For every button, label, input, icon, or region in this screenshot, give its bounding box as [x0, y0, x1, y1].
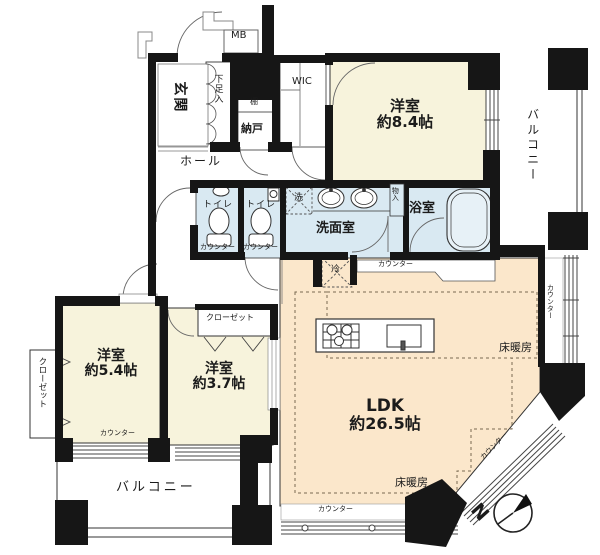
label-toilet-1: トイレ: [203, 201, 233, 210]
kitchen-island: [316, 319, 434, 352]
floorplan: MB 玄関 下足入 棚 納戸 WIC ホール 洋室 約8.4帖 バルコニー トイ…: [0, 0, 600, 555]
kitchen-sink-icon: [387, 325, 421, 350]
label-bedroom54: 洋室 約5.4帖: [65, 349, 157, 378]
label-counter-bedroom54: カウンター: [100, 430, 135, 437]
label-floor-heating-east: 床暖房: [499, 342, 532, 354]
label-counter-south: カウンター: [318, 506, 353, 513]
label-storage: 納戸: [241, 123, 263, 135]
sliding-door: [268, 338, 280, 410]
label-fridge: 冷: [331, 266, 340, 275]
label-washroom: 洗面室: [316, 222, 355, 236]
label-shoe-cabinet: 下足入: [212, 74, 221, 104]
label-closet-37: クローゼット: [206, 314, 254, 322]
label-wic: WIC: [292, 77, 312, 88]
label-balcony-south: バルコニー: [116, 481, 196, 495]
label-toilet-2: トイレ: [246, 201, 276, 210]
bedroom84-size: 約8.4帖: [377, 113, 434, 131]
label-washer: 洗: [294, 194, 303, 203]
bedroom37-name: 洋室: [205, 361, 233, 377]
label-balcony-east: バルコニー: [526, 108, 539, 183]
label-counter-kitchen: カウンター: [378, 261, 413, 268]
label-counter-east: カウンター: [546, 284, 553, 319]
bedroom37-size: 約3.7帖: [193, 376, 246, 392]
label-floor-heating-south: 床暖房: [395, 477, 428, 489]
compass-icon: [494, 494, 532, 532]
bedroom54-name: 洋室: [97, 348, 125, 364]
label-genkan: 玄関: [172, 81, 187, 113]
label-counter-toilet-1: カウンター: [200, 244, 235, 251]
label-closet-west: クローゼット: [37, 357, 46, 408]
label-ldk: LDK 約26.5帖: [330, 398, 440, 434]
label-hall: ホール: [180, 155, 222, 168]
label-bedroom84: 洋室 約8.4帖: [345, 99, 465, 131]
label-counter-toilet-2: カウンター: [243, 244, 278, 251]
label-meter-box: MB: [231, 31, 247, 42]
bedroom54-size: 約5.4帖: [85, 363, 138, 379]
label-shelf: 棚: [250, 98, 258, 106]
ldk-size: 約26.5帖: [349, 414, 420, 433]
bathtub-icon: [447, 189, 491, 251]
label-small-storage: 物入: [391, 187, 398, 201]
label-bedroom37: 洋室 約3.7帖: [173, 362, 265, 391]
label-bathroom: 浴室: [409, 202, 435, 216]
